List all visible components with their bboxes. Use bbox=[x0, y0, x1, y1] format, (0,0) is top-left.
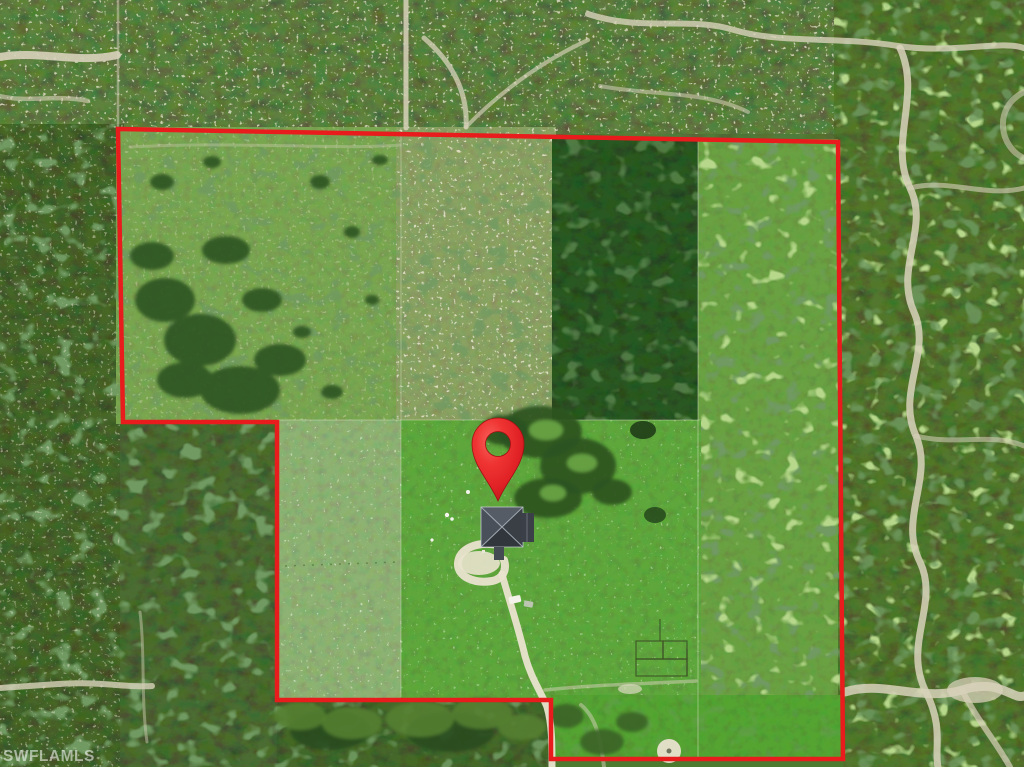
pasture-east bbox=[698, 139, 838, 760]
aerial-photo-canvas: SWFLAMLS bbox=[0, 0, 1024, 767]
dark-tree-spot bbox=[630, 421, 656, 439]
walkway-dot bbox=[482, 550, 485, 553]
forest-right-band bbox=[834, 0, 1024, 767]
aerial-property-photo: SWFLAMLS bbox=[0, 0, 1024, 767]
forest-left-band bbox=[0, 124, 124, 767]
pale-field bbox=[277, 420, 403, 700]
dark-tree-spot bbox=[644, 507, 666, 523]
scrub-strip bbox=[396, 127, 556, 422]
breezeway bbox=[494, 547, 504, 560]
roof-wing bbox=[521, 513, 534, 542]
dense-woods-block bbox=[552, 139, 704, 420]
watermark: SWFLAMLS bbox=[3, 748, 95, 765]
